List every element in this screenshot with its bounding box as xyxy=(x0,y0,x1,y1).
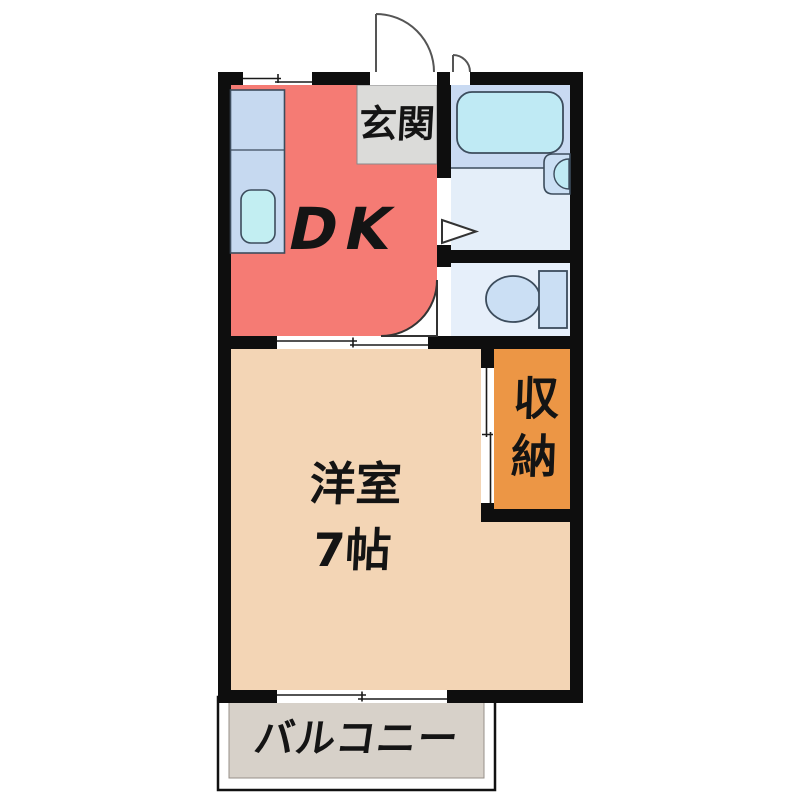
wall-right xyxy=(570,72,583,703)
wall-washroom-toilet xyxy=(446,250,570,263)
western-room-label: 洋室 xyxy=(244,451,467,517)
balcony-label: バルコニー xyxy=(224,703,489,775)
toilet-tank-icon xyxy=(539,271,567,328)
western-room-size-label: 7帖 xyxy=(241,517,464,583)
toilet-bowl-icon xyxy=(486,276,540,322)
wall-left xyxy=(218,72,231,703)
entrance-label: 玄関 xyxy=(355,87,439,161)
wall-storage-bottom xyxy=(481,509,573,522)
bathtub-icon xyxy=(457,92,563,153)
western-room-label-block: 洋室 7帖 xyxy=(241,451,468,583)
storage-label: 収納 xyxy=(491,354,572,510)
dk-label: DK xyxy=(251,194,438,264)
floor-plan-canvas: 玄関 DK 洋室 7帖 収納 バルコニー xyxy=(0,0,800,800)
entrance-door-opening xyxy=(370,72,437,85)
toilet-door-opening xyxy=(437,267,451,336)
entrance-child-door-opening xyxy=(450,72,470,85)
